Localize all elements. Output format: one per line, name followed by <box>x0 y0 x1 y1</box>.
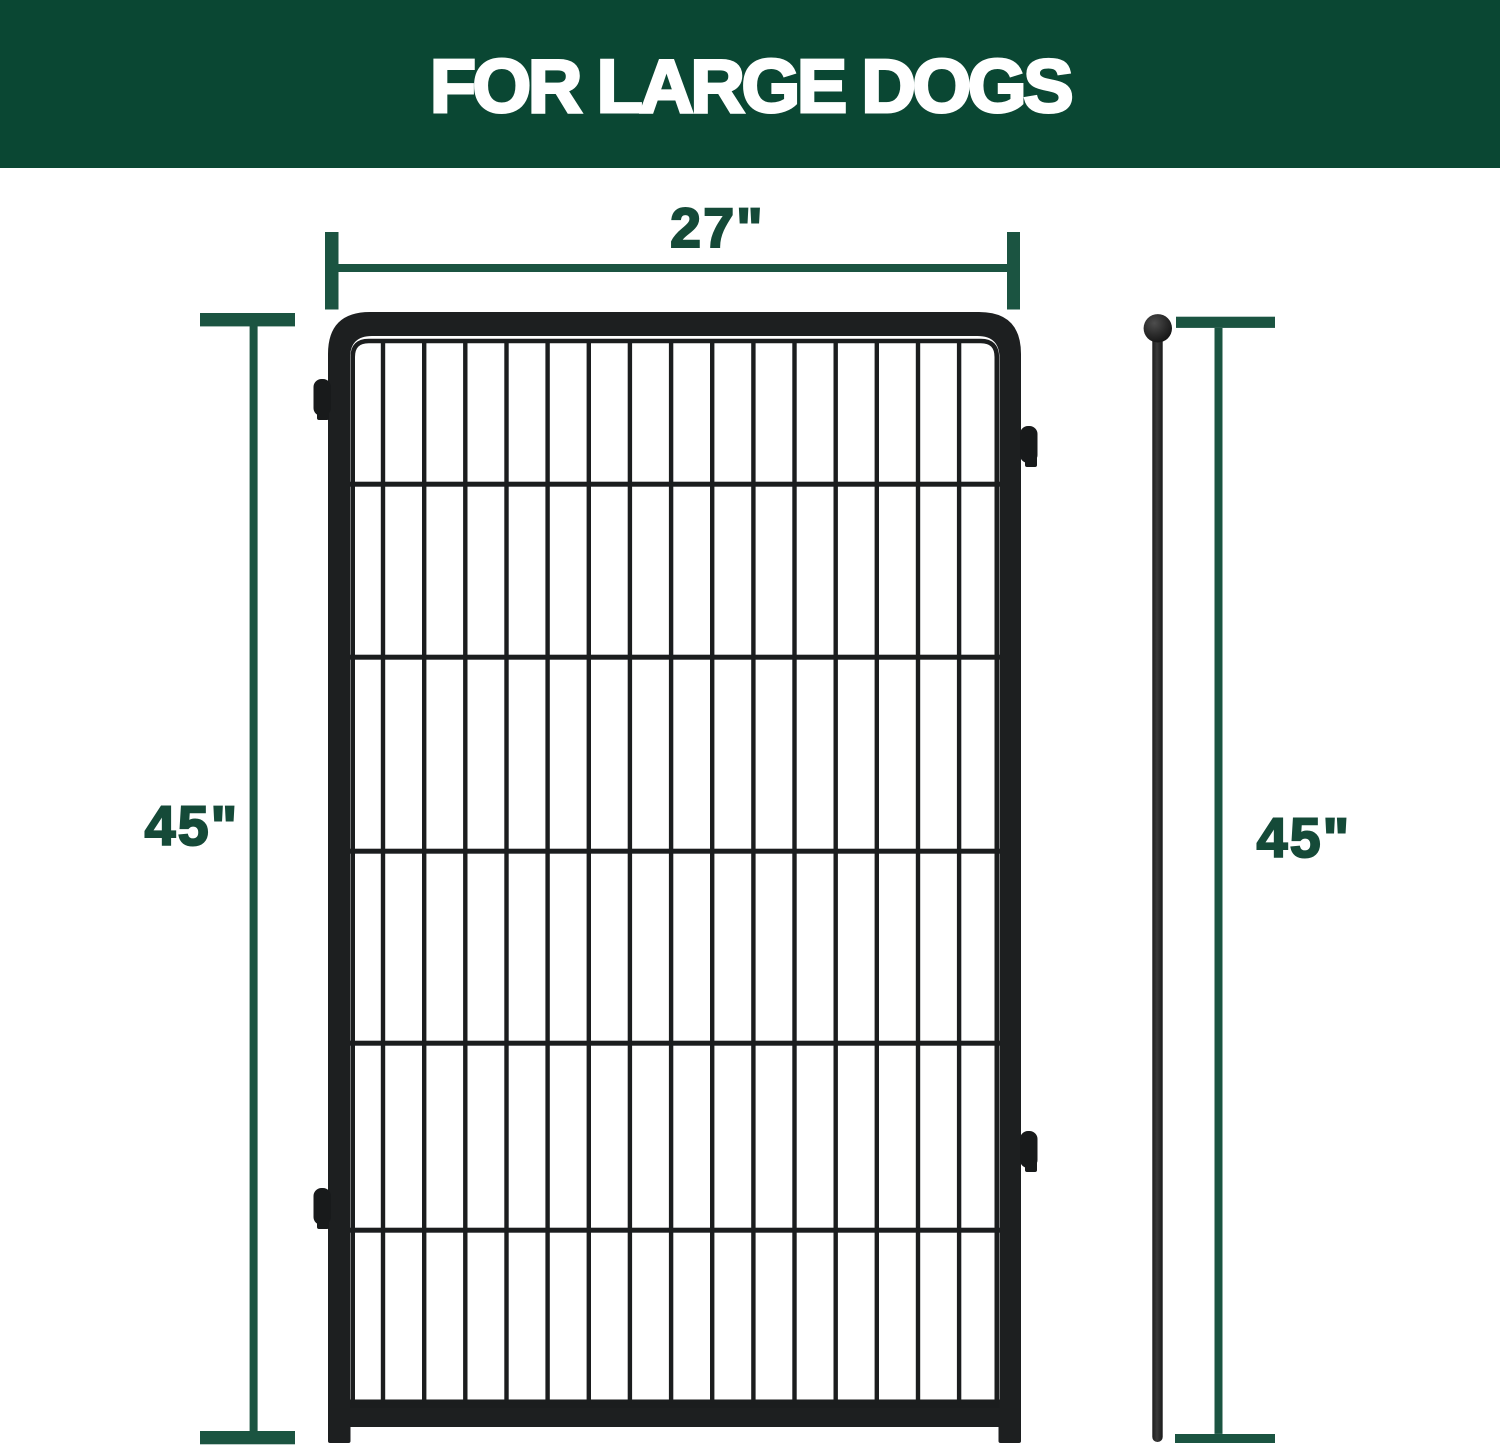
svg-text:45": 45" <box>1257 807 1352 869</box>
svg-text:FOR LARGE DOGS: FOR LARGE DOGS <box>430 44 1071 128</box>
svg-text:27": 27" <box>670 197 765 259</box>
svg-text:45": 45" <box>145 795 240 857</box>
